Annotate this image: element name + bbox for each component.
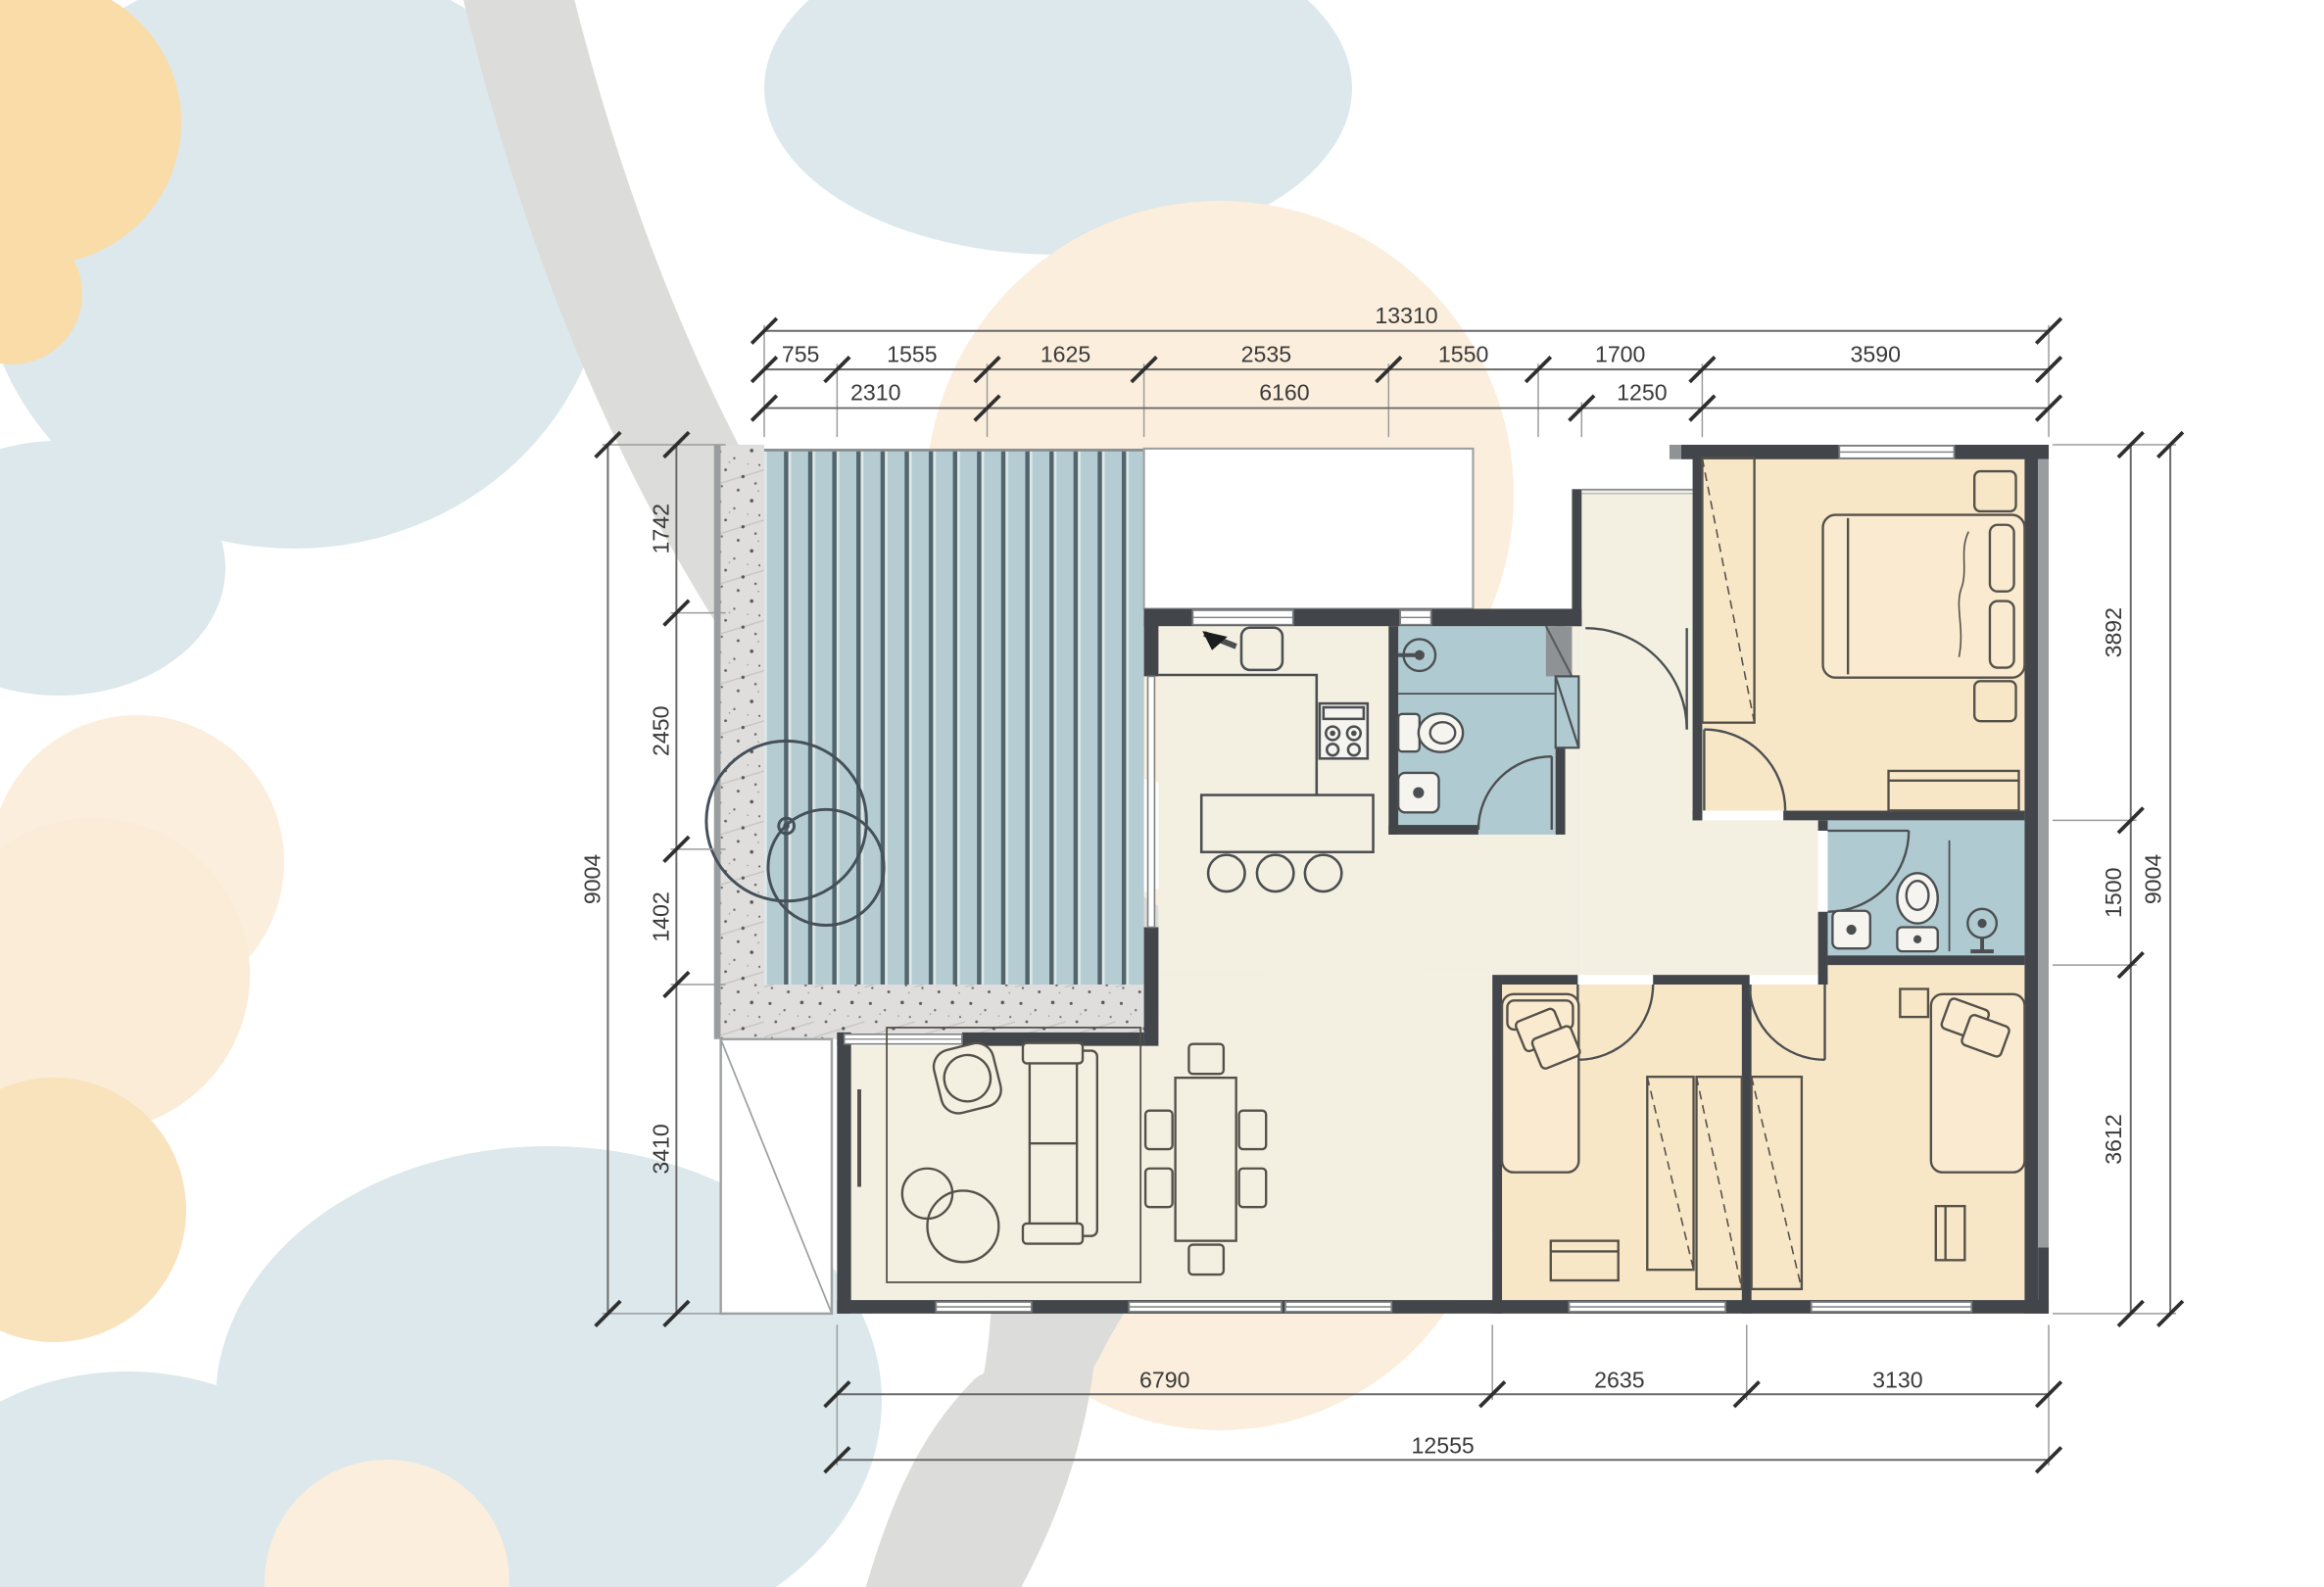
exterior-cladding <box>2038 459 2049 1248</box>
window-living-2 <box>1129 1302 1282 1312</box>
wall-end-cap <box>1670 445 1681 459</box>
side-table <box>1900 989 1928 1018</box>
floorplan-page: { "dimensions": { "top": { "overall": "1… <box>0 0 2324 1587</box>
dim-top-overall: 13310 <box>1375 303 1437 328</box>
dim-top-seg: 3590 <box>1851 341 1901 366</box>
vanity-icon <box>1398 773 1438 812</box>
single-bed-icon <box>1931 994 2025 1173</box>
double-bed-icon <box>1823 515 2025 678</box>
dim-left-seg: 1402 <box>648 891 673 941</box>
sliding-door-balcony-living <box>845 1034 962 1044</box>
hallway-floor <box>1693 820 1818 975</box>
dim-top-sub: 2310 <box>850 380 900 406</box>
dim-bottom-overall: 12555 <box>1411 1432 1474 1458</box>
sliding-door-balcony-side <box>1148 676 1155 927</box>
desk <box>1551 1241 1619 1280</box>
nightstand <box>1974 471 2015 511</box>
wardrobe-icon <box>1702 458 1754 723</box>
dim-bottom-seg: 3130 <box>1872 1367 1922 1392</box>
dim-top-sub: 1250 <box>1617 380 1667 406</box>
entry-hall-floor <box>1581 489 1692 975</box>
window-bedroom2 <box>1569 1302 1725 1312</box>
living-floor-mid <box>1158 975 1492 1052</box>
dim-left-seg: 1742 <box>648 504 673 553</box>
kitchen-island <box>1201 795 1373 852</box>
window-living-3 <box>1285 1302 1391 1312</box>
dim-right-seg: 3892 <box>2101 607 2126 657</box>
concrete-strip <box>721 445 764 1039</box>
floorplan-canvas: 13310 755 1555 1625 2535 1550 1700 3590 … <box>0 0 2324 1587</box>
dim-bottom-seg: 6790 <box>1139 1367 1189 1392</box>
dim-right-seg: 3612 <box>2101 1114 2126 1164</box>
void-area <box>1144 449 1474 609</box>
window-living-1 <box>936 1302 1032 1312</box>
toilet-icon <box>1398 713 1463 751</box>
concrete-band <box>721 985 1144 1039</box>
nightstand <box>1974 681 2015 721</box>
balcony-decking <box>764 451 1144 985</box>
sofa-icon <box>1023 1043 1097 1244</box>
basin-icon <box>1832 911 1869 948</box>
dim-left-seg: 3410 <box>648 1124 673 1174</box>
dim-top-seg: 1625 <box>1041 341 1090 366</box>
dim-top-seg: 2535 <box>1241 341 1291 366</box>
single-bed-icon <box>1502 994 1581 1173</box>
window-bathroom1 <box>1400 610 1431 625</box>
window-kitchen <box>1192 610 1292 625</box>
dim-top-seg: 755 <box>782 341 820 366</box>
dim-right-overall: 9004 <box>2140 854 2165 905</box>
wardrobe-icon <box>1647 1077 1742 1289</box>
balcony <box>706 445 1144 1039</box>
dim-bottom-seg: 2635 <box>1594 1367 1644 1392</box>
toilet-icon <box>1897 873 1937 951</box>
balcony-edge-wall <box>714 445 721 1039</box>
window-master-bedroom <box>1839 446 1954 458</box>
dim-right-seg: 1500 <box>2101 868 2126 918</box>
wardrobe-icon <box>1752 1077 1802 1289</box>
dim-top-seg: 1550 <box>1438 341 1488 366</box>
window-bedroom3 <box>1812 1302 1972 1312</box>
dim-left-seg: 2450 <box>648 706 673 756</box>
dim-top-sub: 6160 <box>1259 380 1309 406</box>
dim-left-overall: 9004 <box>580 854 605 905</box>
cooktop-icon <box>1320 703 1368 758</box>
dim-top-seg: 1700 <box>1595 341 1645 366</box>
dim-top-seg: 1555 <box>887 341 937 366</box>
dresser <box>1889 771 2019 810</box>
desk <box>1936 1206 1965 1260</box>
entry-ramp <box>721 1039 832 1314</box>
